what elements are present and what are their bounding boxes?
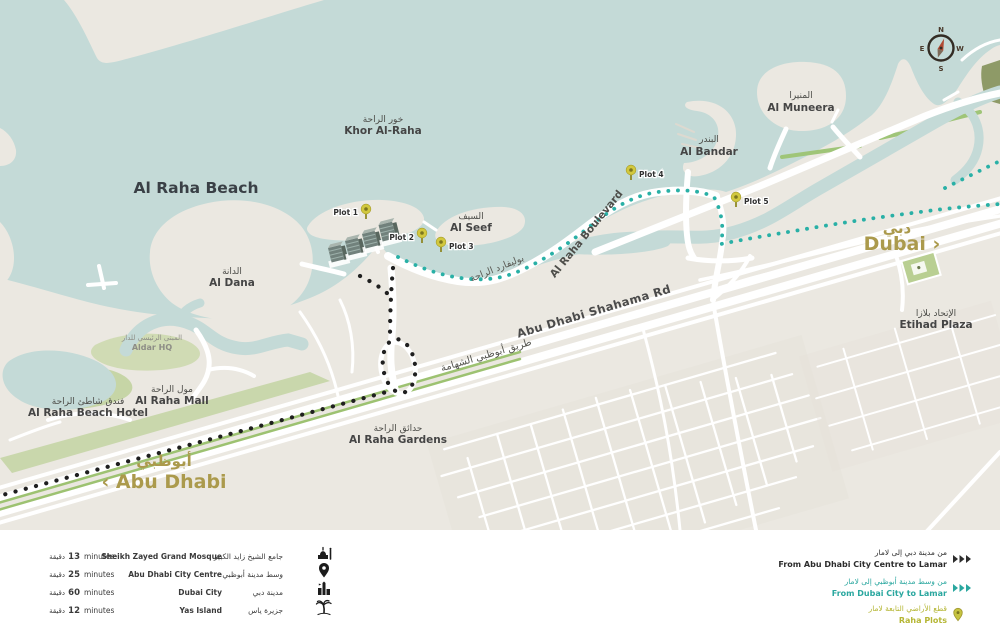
compass-e: E <box>920 45 925 53</box>
al-seef-label-en: Al Seef <box>450 222 492 234</box>
lamar-location-map: Plot 1 Plot 2 Plot 3 Plot 4 Plot 5 <box>0 0 1000 632</box>
al-muneera-label-ar: المنيرا <box>789 91 812 101</box>
al-seef-label-ar: السيف <box>458 212 483 222</box>
minutes-ar: دقيقة <box>49 589 65 597</box>
compass-w: W <box>956 45 964 53</box>
al-dana-island <box>150 200 313 320</box>
etihad-plaza-label-ar: الإتحاد بلازا <box>916 309 956 319</box>
minutes-word: minutes <box>84 606 114 615</box>
al-bandar-label-ar: البندر <box>698 135 719 145</box>
al-raha-gardens-label-ar: حدائق الراحة <box>374 424 423 434</box>
compass-n: N <box>938 26 944 34</box>
minutes-value: 13 <box>68 552 80 562</box>
dubai-label-en: Dubai › <box>864 233 941 255</box>
plot-label: Plot 4 <box>639 170 664 179</box>
destination-en: Abu Dhabi City Centre <box>128 570 222 579</box>
plot-label: Plot 2 <box>389 233 414 242</box>
khor-al-raha-label-en: Khor Al-Raha <box>344 125 421 137</box>
destination-ar: مدينة دبي <box>253 588 283 597</box>
al-dana-label-en: Al Dana <box>209 277 255 289</box>
al-dana-label-ar: الدانة <box>222 267 242 277</box>
route-label-en: Raha Plots <box>899 616 947 625</box>
route-label-en: From Dubai City to Lamar <box>832 589 947 598</box>
minutes-word: minutes <box>84 588 114 597</box>
al-raha-mall-label-ar: مول الراحة <box>151 385 193 395</box>
destination-en: Sheikh Zayed Grand Mosque <box>101 552 222 561</box>
plot-label: Plot 1 <box>333 208 358 217</box>
peninsula-access-road <box>391 268 396 392</box>
minutes-ar: دقيقة <box>49 607 65 615</box>
jetty-head <box>88 283 116 285</box>
plot-label: Plot 3 <box>449 242 474 251</box>
destination-ar: جامع الشيخ زايد الكبير <box>213 552 284 561</box>
abu-dhabi-label-en: ‹ Abu Dhabi <box>101 471 226 493</box>
khor-al-raha-label-ar: خور الراحة <box>363 115 404 125</box>
al-muneera-label-en: Al Muneera <box>767 102 834 114</box>
abu-dhabi-label-ar: أبوظبي <box>136 451 192 470</box>
route-label-ar: من وسط مدينة أبوظبي إلى لامار <box>844 576 947 586</box>
minutes-ar: دقيقة <box>49 571 65 579</box>
destination-ar: وسط مدينة أبوظبي <box>222 569 283 579</box>
al-raha-beach-hotel-label-en: Al Raha Beach Hotel <box>28 407 148 419</box>
al-raha-beach-label: Al Raha Beach <box>134 179 259 197</box>
minutes-word: minutes <box>84 570 114 579</box>
route-label-ar: من مدينة دبي إلى لامار <box>874 548 947 557</box>
al-raha-gardens-label-en: Al Raha Gardens <box>349 434 447 446</box>
al-raha-beach-hotel-label-ar: فندق شاطئ الراحة <box>52 397 125 407</box>
al-raha-mall-label-en: Al Raha Mall <box>135 395 209 407</box>
destination-en: Yas Island <box>179 606 222 615</box>
minutes-value: 12 <box>68 606 80 616</box>
minutes-ar: دقيقة <box>49 553 65 561</box>
minutes-value: 60 <box>68 588 80 598</box>
aldar-hq-label-en: Aldar HQ <box>132 343 172 352</box>
destination-ar: جزيرة ياس <box>248 606 283 615</box>
etihad-plaza-label-en: Etihad Plaza <box>899 319 972 331</box>
aldar-hq-label-ar: المبنى الرئيسي للدار <box>121 334 182 342</box>
compass-s: S <box>938 65 943 73</box>
route-label-ar: قطع الأراضي التابعة لامار <box>868 603 948 613</box>
plot-label: Plot 5 <box>744 197 769 206</box>
destination-en: Dubai City <box>178 588 222 597</box>
al-bandar-label-en: Al Bandar <box>680 146 739 158</box>
route-label-en: From Abu Dhabi City Centre to Lamar <box>778 560 947 569</box>
minutes-value: 25 <box>68 570 80 580</box>
